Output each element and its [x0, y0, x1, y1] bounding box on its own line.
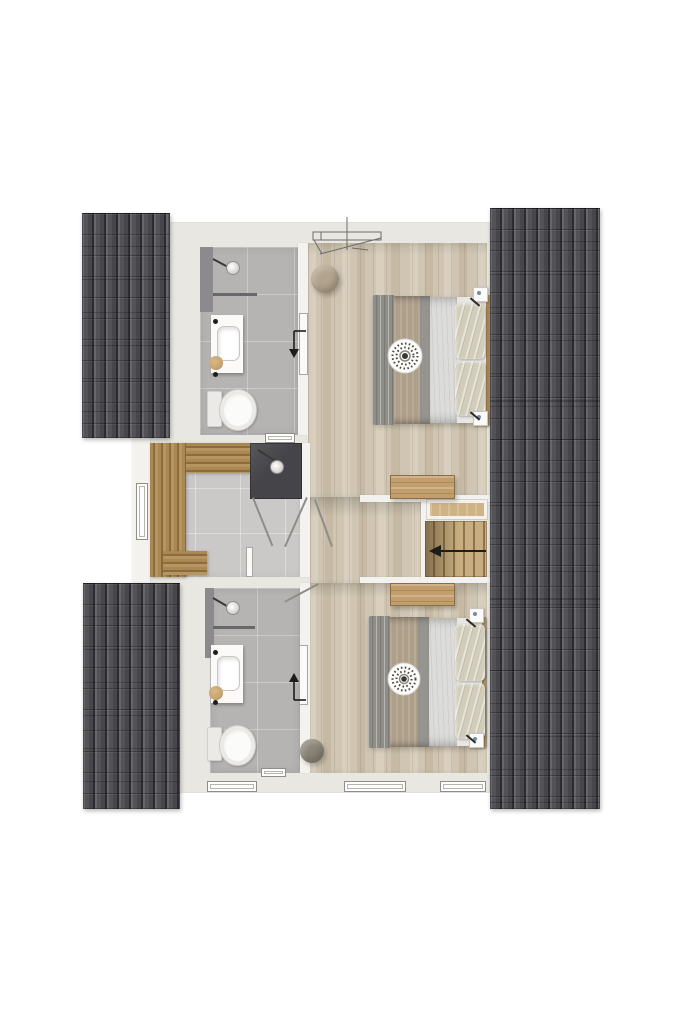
window-left-wall [136, 483, 148, 540]
shower-head-icon [226, 261, 240, 275]
decor-plate [387, 662, 421, 696]
sauna-bench-corner [163, 551, 207, 575]
sink-basin [217, 326, 240, 361]
window-bottom-3 [440, 781, 486, 792]
foot-bench-bottom [390, 583, 455, 606]
pillow [455, 303, 485, 359]
floor-plan-render [0, 0, 683, 1024]
window-bottom-1 [207, 781, 257, 792]
bed-sheet [430, 297, 457, 423]
glass-shelf [213, 293, 257, 296]
bed-sheet [429, 618, 457, 746]
faucet-dot [213, 650, 218, 655]
pillow [455, 624, 485, 681]
hallway-floor [310, 497, 421, 583]
accessory-dot [213, 700, 218, 705]
shower-head-icon [226, 601, 240, 615]
nightstand [473, 287, 488, 302]
door-arrow-up [284, 672, 308, 704]
bathroom-top-shower-wall [200, 247, 213, 312]
roof-left-top [82, 213, 170, 438]
door-arrow-down [284, 327, 308, 359]
bed-top [372, 295, 492, 425]
roof-right [490, 208, 600, 809]
window-bottom-2 [344, 781, 406, 792]
wood-stool [209, 686, 223, 700]
door-leaf-sauna [246, 547, 253, 577]
toilet-bowl [219, 725, 256, 766]
roof-seam [490, 400, 600, 402]
bed-bottom [368, 616, 488, 748]
window-bathroom-bottom-small [261, 768, 286, 777]
roof-seam [490, 598, 600, 600]
sauna-bench-top [186, 443, 250, 473]
faucet-dot [213, 319, 218, 324]
round-pouf-bottom [300, 739, 324, 763]
sink-basin [217, 656, 240, 691]
window-bathroom-top-small [265, 433, 295, 443]
sauna-shower-head-icon [270, 460, 284, 474]
stair-landing-niche [427, 500, 487, 519]
roof-left-bottom [83, 583, 180, 809]
foot-bench-top [390, 475, 455, 499]
glass-shelf [213, 626, 255, 629]
round-pouf-top [311, 265, 339, 293]
decor-plate [387, 338, 423, 374]
wood-stool [209, 356, 223, 370]
pillow [455, 683, 485, 739]
skylight-symbol [300, 190, 396, 260]
stair-direction-arrow [428, 544, 488, 558]
accessory-dot [213, 372, 218, 377]
toilet-bowl [219, 389, 257, 431]
nightstand [469, 608, 484, 623]
pillow [455, 361, 485, 416]
